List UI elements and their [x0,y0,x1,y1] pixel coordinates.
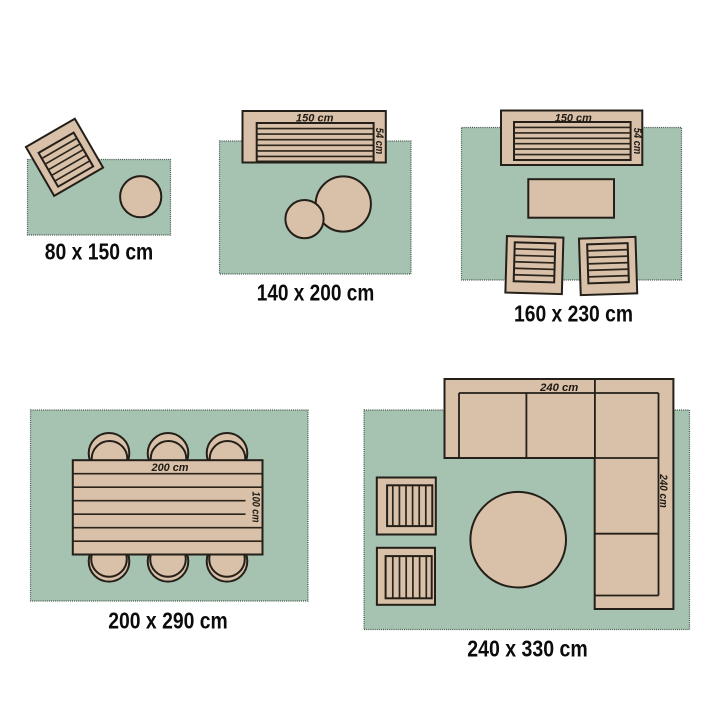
svg-text:200 cm: 200 cm [151,462,189,474]
svg-text:240 cm: 240 cm [657,473,669,508]
svg-text:240 cm: 240 cm [539,382,578,394]
svg-text:240 x 330 cm: 240 x 330 cm [467,635,588,661]
svg-text:200 x 290 cm: 200 x 290 cm [108,608,228,634]
svg-text:150 cm: 150 cm [555,113,592,125]
svg-text:54 cm: 54 cm [373,128,385,155]
svg-text:80 x 150 cm: 80 x 150 cm [45,239,154,265]
svg-text:54 cm: 54 cm [631,128,643,155]
svg-text:140 x 200 cm: 140 x 200 cm [257,280,375,306]
svg-text:150 cm: 150 cm [296,113,334,125]
svg-text:160 x 230 cm: 160 x 230 cm [514,300,633,326]
svg-text:100 cm: 100 cm [249,492,261,523]
